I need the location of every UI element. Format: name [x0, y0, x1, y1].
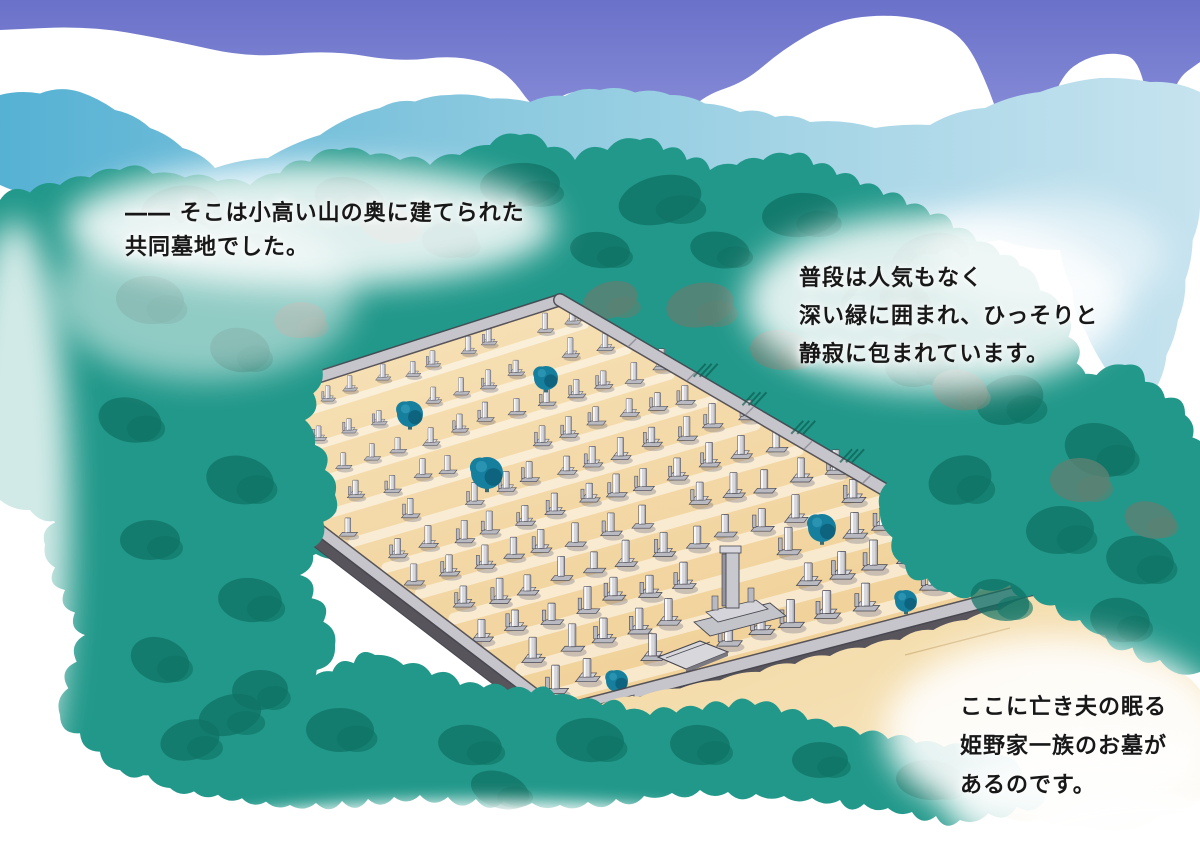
- caption-line: ここに亡き夫の眠る: [960, 688, 1167, 727]
- caption-line: ―― そこは小高い山の奥に建てられた: [125, 197, 525, 231]
- caption-line: 深い緑に囲まれ、ひっそりと: [799, 298, 1098, 336]
- caption-line: あるのです。: [960, 766, 1167, 805]
- caption-line: 姫野家一族のお墓が: [960, 727, 1167, 766]
- caption-line: 共同墓地でした。: [125, 231, 525, 265]
- caption-line: 普段は人気もなく: [799, 260, 1098, 298]
- storybook-illustration-page: ―― そこは小高い山の奥に建てられた 共同墓地でした。 普段は人気もなく 深い緑…: [0, 0, 1200, 850]
- caption-line: 静寂に包まれています。: [799, 336, 1098, 374]
- caption-quiet: 普段は人気もなく 深い緑に囲まれ、ひっそりと 静寂に包まれています。: [799, 260, 1098, 374]
- caption-grave: ここに亡き夫の眠る 姫野家一族のお墓が あるのです。: [960, 688, 1167, 805]
- caption-opening: ―― そこは小高い山の奥に建てられた 共同墓地でした。: [125, 197, 525, 265]
